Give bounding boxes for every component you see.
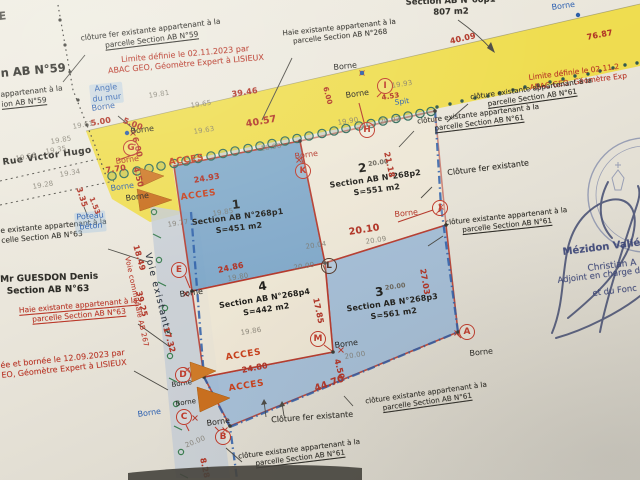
label-poteau-beton: Poteaubéton: [74, 210, 107, 233]
survey-marker-g: G: [123, 140, 139, 156]
survey-marker-h: H: [359, 122, 375, 138]
survey-plan-photo: G I H K J L E A M D C B 1 Section AB N°2…: [0, 0, 640, 480]
survey-marker-a: A: [459, 324, 475, 340]
survey-marker-j: J: [432, 200, 448, 216]
survey-marker-d: D: [175, 367, 191, 383]
survey-marker-m: M: [310, 331, 326, 347]
survey-marker-l: L: [321, 258, 337, 274]
corner-text-fragment: E: [0, 9, 7, 24]
survey-marker-b: B: [215, 429, 231, 445]
survey-marker-e: E: [171, 262, 187, 278]
survey-marker-i: I: [377, 78, 393, 94]
survey-marker-c: C: [176, 409, 192, 425]
survey-marker-k: K: [295, 163, 311, 179]
label-guesdon-ab63: Mr GUESDON DenisSection AB N°63: [0, 272, 96, 299]
